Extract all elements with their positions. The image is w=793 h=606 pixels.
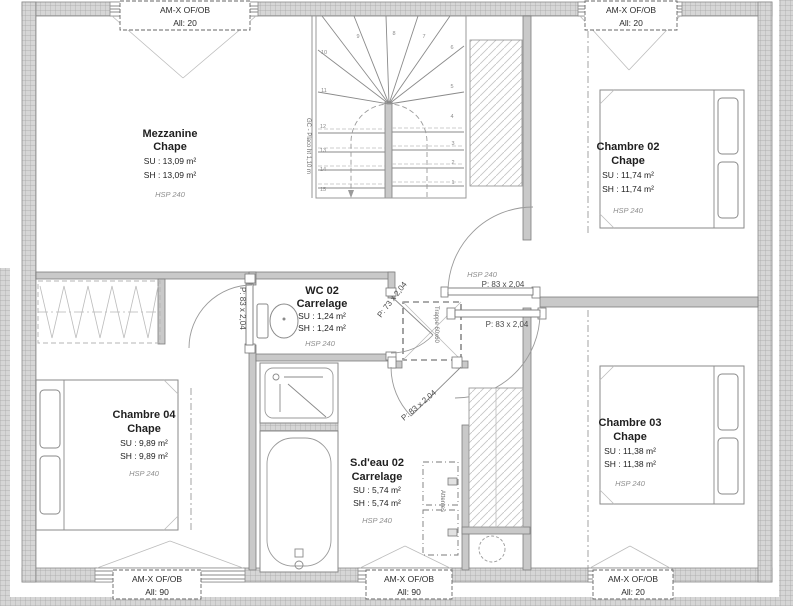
water-heater: [479, 536, 505, 562]
attentes-label: Attentes: [439, 490, 445, 512]
sdeau-closet: [469, 388, 523, 527]
toilet: [257, 304, 298, 338]
svg-text:Chape: Chape: [127, 423, 161, 435]
sdeau-door-label: P: 83 x 2,04: [400, 388, 439, 423]
svg-text:SU : 11,38 m²: SU : 11,38 m²: [604, 446, 656, 456]
step-number: 7: [422, 34, 425, 40]
step-number: 6: [450, 45, 453, 51]
svg-text:SH : 9,89 m²: SH : 9,89 m²: [120, 451, 168, 461]
svg-text:All: 90: All: 90: [145, 587, 169, 597]
svg-text:Chape: Chape: [153, 141, 187, 153]
casement-swing-bottom-left: [97, 541, 243, 568]
svg-text:SH : 5,74 m²: SH : 5,74 m²: [353, 498, 401, 508]
window-label-top-left: AM-X OF/OB All: 20: [120, 1, 250, 30]
svg-text:AM-X OF/OB: AM-X OF/OB: [132, 574, 182, 584]
window-label-top-right: AM-X OF/OB All: 20: [585, 1, 677, 30]
svg-text:Carrelage: Carrelage: [297, 298, 348, 310]
step-number: 1: [451, 180, 454, 186]
bathtub: [260, 431, 338, 572]
svg-text:HSP 240: HSP 240: [615, 479, 646, 488]
svg-text:SH : 1,24 m²: SH : 1,24 m²: [298, 323, 346, 333]
svg-text:All: 20: All: 20: [619, 18, 643, 28]
stair-side-closet: [470, 40, 522, 186]
window-label-bottom-right: AM-X OF/OB All: 20: [593, 570, 673, 599]
step-number: 10: [321, 50, 327, 56]
step-number: 15: [320, 187, 326, 193]
svg-text:Chape: Chape: [613, 431, 647, 443]
svg-text:AM-X OF/OB: AM-X OF/OB: [608, 574, 658, 584]
svg-text:HSP 240: HSP 240: [155, 190, 186, 199]
casement-swing-bottom-middle: [360, 546, 450, 568]
svg-text:SU : 9,89 m²: SU : 9,89 m²: [120, 438, 168, 448]
palier-hsp-label: HSP 240: [467, 270, 498, 279]
casement-swing-bottom-right: [590, 546, 670, 568]
step-number: 9: [356, 34, 359, 40]
svg-text:SU : 13,09 m²: SU : 13,09 m²: [144, 156, 197, 166]
svg-text:AM-X OF/OB: AM-X OF/OB: [606, 5, 656, 15]
sheet-edge-right: [779, 0, 793, 606]
guardrail-label: GC - Placo ht 1,10 m: [305, 118, 311, 174]
floor-plan-drawing: 1 2 3 4 5 6 7 8 9 10 11 12 13 14 15 GC -…: [0, 0, 793, 606]
step-number: 14: [320, 167, 326, 173]
step-number: 8: [392, 31, 395, 37]
step-number: 11: [321, 88, 327, 94]
chambre04-door-label: P: 83 x 2,04: [238, 287, 247, 330]
svg-text:S.d'eau 02: S.d'eau 02: [350, 457, 404, 469]
room-label-wc02: WC 02 Carrelage SU : 1,24 m² SH : 1,24 m…: [297, 285, 348, 348]
svg-text:HSP 240: HSP 240: [613, 206, 644, 215]
svg-text:All: 90: All: 90: [397, 587, 421, 597]
room-label-mezzanine: Mezzanine Chape SU : 13,09 m² SH : 13,09…: [142, 128, 197, 199]
shower: [260, 363, 338, 423]
window-label-bottom-left: AM-X OF/OB All: 90: [113, 570, 201, 599]
svg-text:AM-X OF/OB: AM-X OF/OB: [384, 574, 434, 584]
svg-text:All: 20: All: 20: [621, 587, 645, 597]
staircase: 1 2 3 4 5 6 7 8 9 10 11 12 13 14 15 GC -…: [305, 16, 522, 198]
svg-text:Chambre 04: Chambre 04: [113, 409, 177, 421]
shower-curb: [260, 423, 338, 431]
step-number: 3: [451, 141, 454, 147]
svg-text:All: 20: All: 20: [173, 18, 197, 28]
step-number: 13: [320, 148, 326, 154]
svg-text:Chambre 03: Chambre 03: [599, 417, 662, 429]
wardrobe-closet: [38, 281, 160, 343]
trappe-label: Trappe 60x60: [433, 306, 439, 343]
walking-line-arrow: [348, 190, 354, 198]
chambre02-door-label: P: 83 x 2,04: [482, 280, 525, 289]
window-label-bottom-middle: AM-X OF/OB All: 90: [366, 570, 452, 599]
step-number: 4: [450, 114, 453, 120]
svg-text:AM-X OF/OB: AM-X OF/OB: [160, 5, 210, 15]
step-number: 2: [451, 160, 454, 166]
svg-text:Carrelage: Carrelage: [352, 471, 403, 483]
attentes-hookups: Attentes: [423, 462, 458, 555]
svg-text:SU : 1,24 m²: SU : 1,24 m²: [298, 311, 346, 321]
room-label-sdeau02: S.d'eau 02 Carrelage SU : 5,74 m² SH : 5…: [350, 457, 404, 525]
step-number: 12: [320, 124, 326, 130]
svg-text:Chambre 02: Chambre 02: [597, 141, 660, 153]
svg-text:HSP 240: HSP 240: [129, 469, 160, 478]
svg-text:WC 02: WC 02: [305, 285, 339, 297]
chambre03-door-label: P: 83 x 2,04: [486, 320, 529, 329]
svg-text:HSP 240: HSP 240: [305, 339, 336, 348]
svg-text:SH : 13,09 m²: SH : 13,09 m²: [144, 170, 197, 180]
svg-text:SU : 5,74 m²: SU : 5,74 m²: [353, 485, 401, 495]
sheet-edge-left: [0, 268, 10, 606]
svg-text:SH : 11,38 m²: SH : 11,38 m²: [604, 459, 656, 469]
svg-text:Mezzanine: Mezzanine: [142, 128, 197, 140]
floor-plan: 1 2 3 4 5 6 7 8 9 10 11 12 13 14 15 GC -…: [0, 0, 793, 606]
svg-text:HSP 240: HSP 240: [362, 516, 393, 525]
svg-text:Chape: Chape: [611, 155, 645, 167]
svg-text:SH : 11,74 m²: SH : 11,74 m²: [602, 184, 654, 194]
svg-text:SU : 11,74 m²: SU : 11,74 m²: [602, 170, 654, 180]
step-number: 5: [450, 84, 453, 90]
